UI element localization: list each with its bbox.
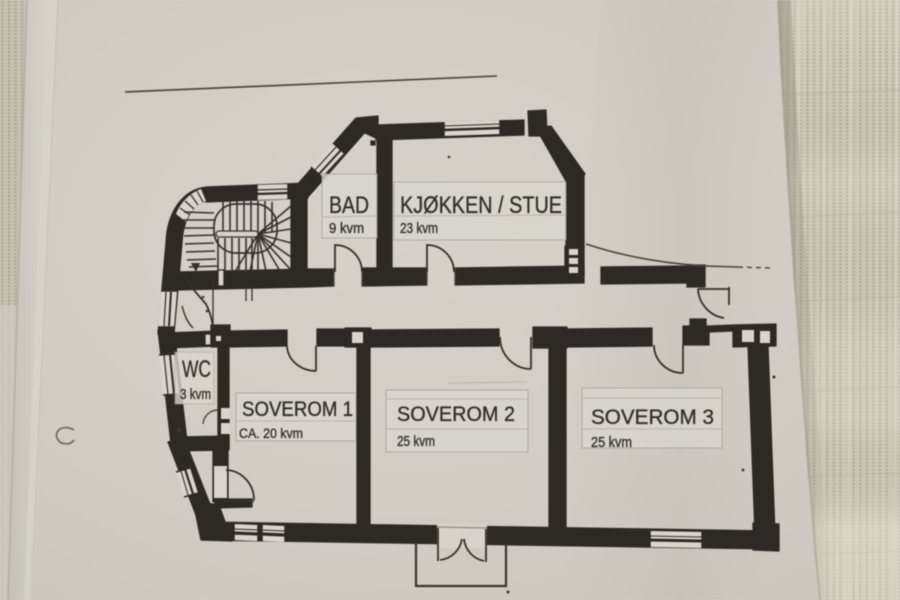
svg-text:25 kvm: 25 kvm [591,435,632,451]
svg-text:SOVEROM 2: SOVEROM 2 [397,403,515,426]
svg-text:CA. 20 kvm: CA. 20 kvm [239,425,303,441]
svg-text:23 kvm: 23 kvm [400,221,438,237]
svg-text:WC: WC [182,356,211,383]
svg-text:SOVEROM 1: SOVEROM 1 [242,398,353,421]
svg-text:BAD: BAD [329,192,369,219]
svg-text:3 kvm: 3 kvm [180,387,211,403]
svg-text:9 kvm: 9 kvm [329,221,364,237]
svg-text:KJØKKEN / STUE: KJØKKEN / STUE [400,192,562,219]
svg-text:25 kvm: 25 kvm [397,434,435,450]
svg-text:SOVEROM 3: SOVEROM 3 [591,405,714,429]
